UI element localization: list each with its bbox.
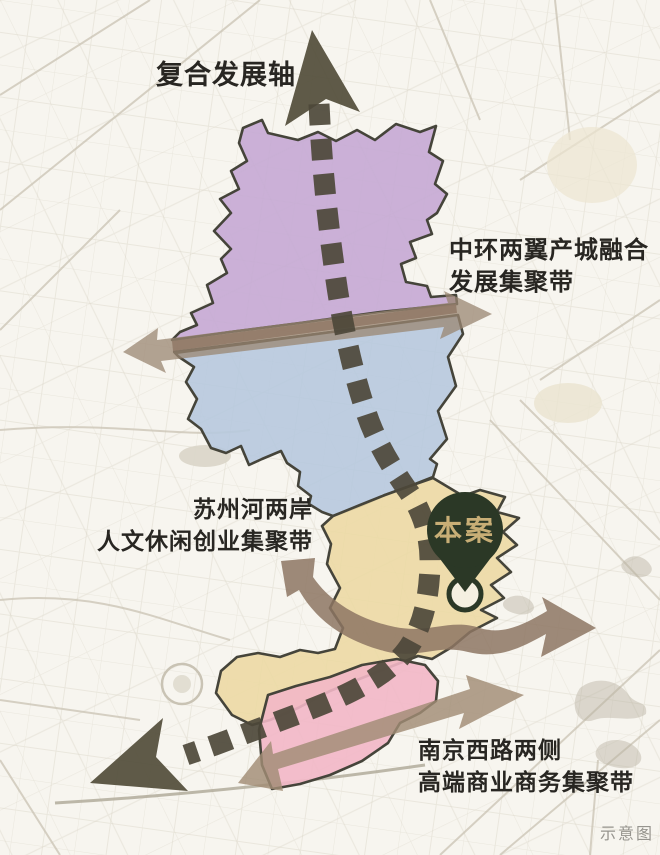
label-nanjing-line2: 高端商业商务集聚带 [418,769,634,796]
label-midring-line2: 发展集聚带 [448,268,574,296]
label-midring-line1: 中环两翼产城融合 [449,236,649,264]
label-suzhou-line1: 苏州河两岸 [193,497,313,523]
label-suzhou-line2: 人文休闲创业集聚带 [97,528,313,555]
label-composite-axis: 复合发展轴 [156,59,296,91]
map-canvas: 本案 复合发展轴 中环两翼产城融合 发展集聚带 苏州河两岸 人文休闲创业集聚带 … [0,0,660,855]
watermark-label: 示意图 [600,824,654,843]
planning-schematic-map: 本案 复合发展轴 中环两翼产城融合 发展集聚带 苏州河两岸 人文休闲创业集聚带 … [0,0,660,855]
label-nanjing-line1: 南京西路两侧 [418,737,562,764]
site-marker-label: 本案 [434,514,496,547]
